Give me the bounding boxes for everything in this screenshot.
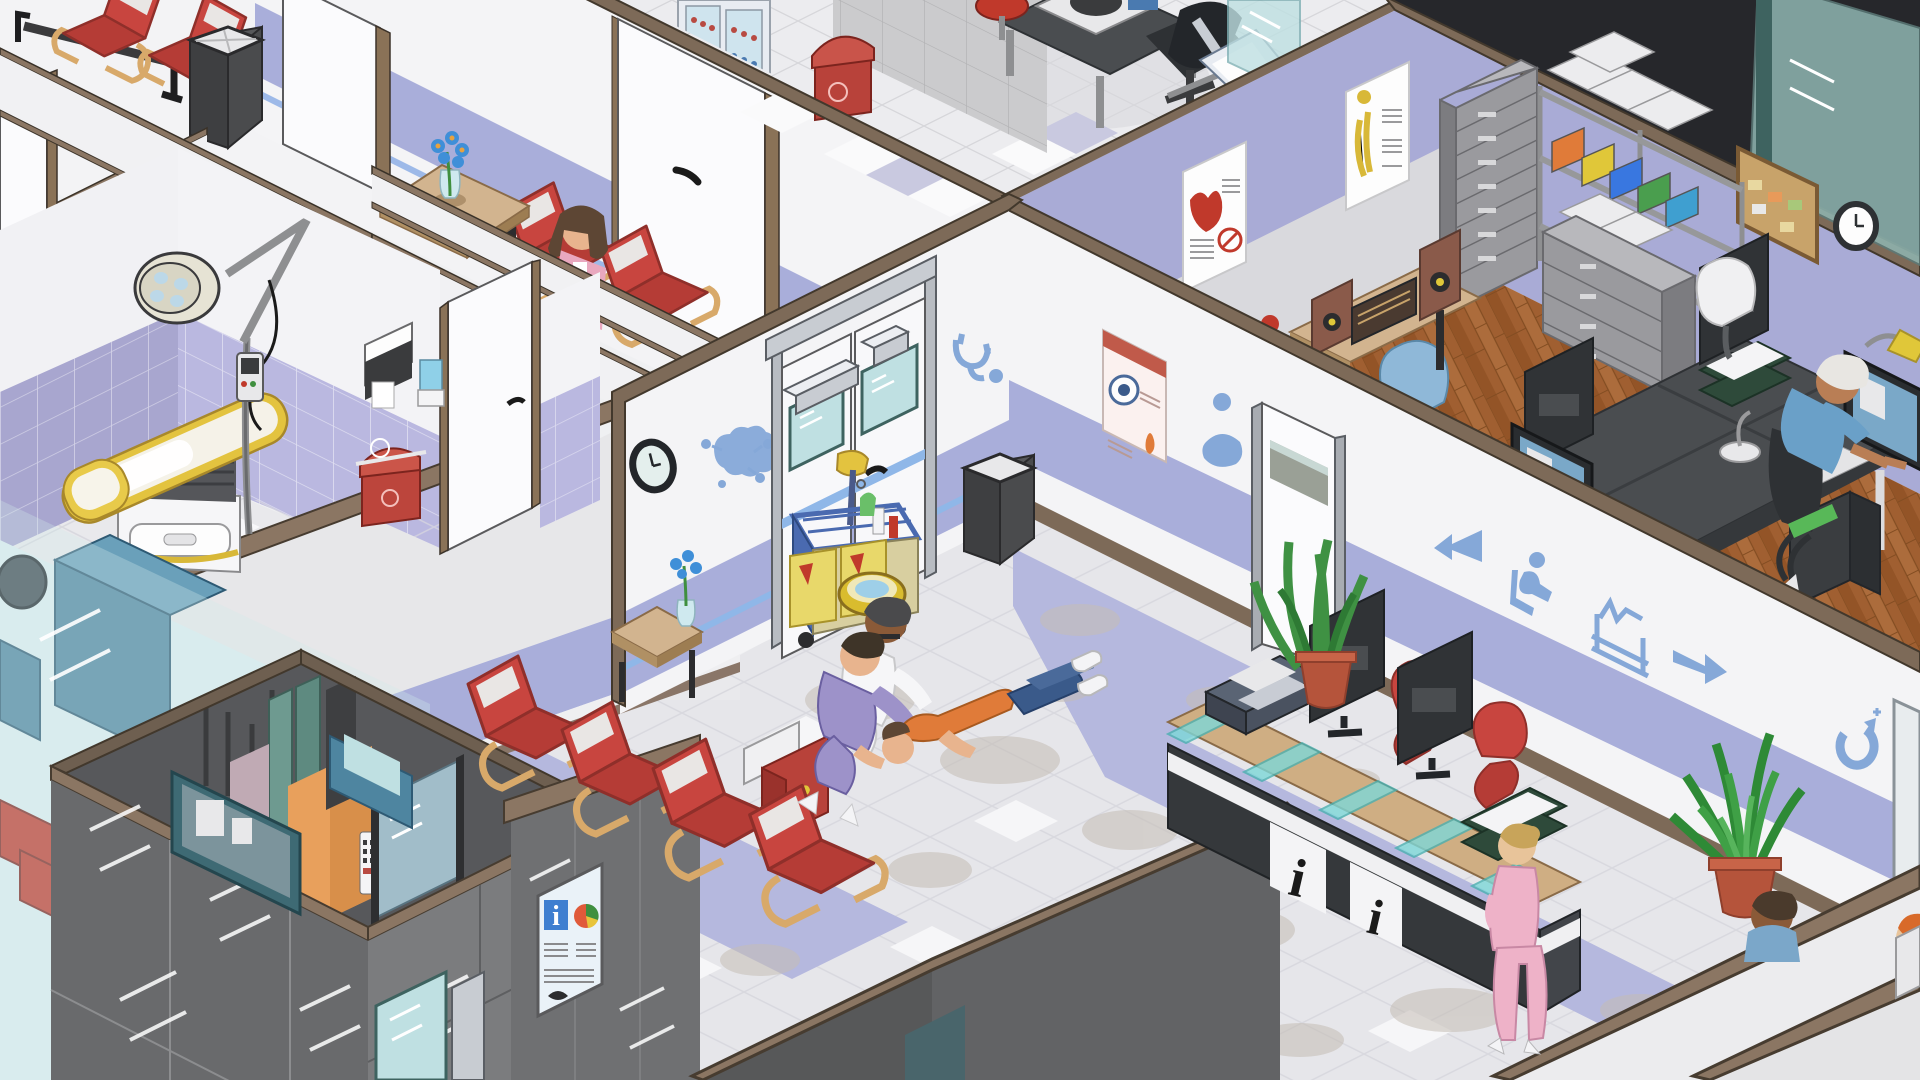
- svg-text:i: i: [552, 901, 560, 932]
